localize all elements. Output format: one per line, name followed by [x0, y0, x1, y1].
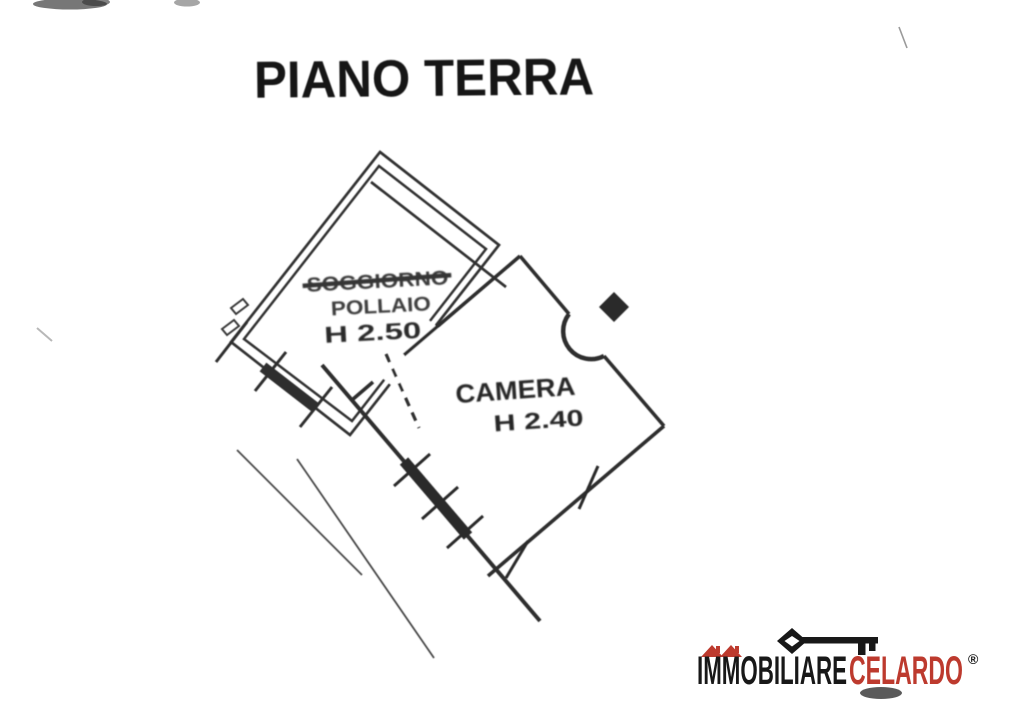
scan-smudge	[174, 0, 200, 7]
room-camera-label: CAMERA	[454, 371, 576, 409]
scan-mark	[899, 27, 907, 48]
page-title: PIANO TERRA	[254, 48, 595, 110]
extension-lines	[237, 450, 434, 658]
room-annex-height-label: H 2.50	[324, 317, 422, 348]
registered-mark: ®	[968, 651, 979, 667]
extension-line	[297, 459, 434, 658]
door-arc-icon	[563, 314, 604, 359]
annex-exterior-bumps	[222, 299, 248, 335]
tick-mark	[216, 322, 247, 362]
filled-wall-segment	[404, 461, 468, 536]
brand-word-immobiliare: IMMOBILIARE	[697, 649, 847, 693]
wall	[488, 426, 664, 576]
brand-word-celardo: CELARDO	[849, 649, 963, 693]
scan-mark	[37, 328, 52, 341]
scanned-floor-plan-page: PIANO TERRA	[0, 0, 1016, 720]
wall	[520, 256, 569, 314]
brand-logo: IMMOBILIARE CELARDO ®	[697, 628, 979, 693]
room-camera-label-block: CAMERA H 2.40	[454, 370, 584, 439]
wall	[604, 356, 664, 426]
floor-plan-svg: PIANO TERRA	[0, 0, 1016, 720]
wall-bump	[222, 320, 239, 335]
floor-plan-drawing	[216, 152, 664, 658]
wall-bump	[231, 299, 248, 314]
key-shaft	[802, 637, 878, 644]
room-camera-height-label: H 2.40	[493, 404, 585, 436]
tick-mark	[579, 466, 598, 509]
diamond-marker-icon	[599, 292, 629, 322]
extension-line	[237, 450, 362, 575]
camera-wall-marks	[394, 454, 598, 578]
annex-wall-marks	[216, 322, 332, 427]
